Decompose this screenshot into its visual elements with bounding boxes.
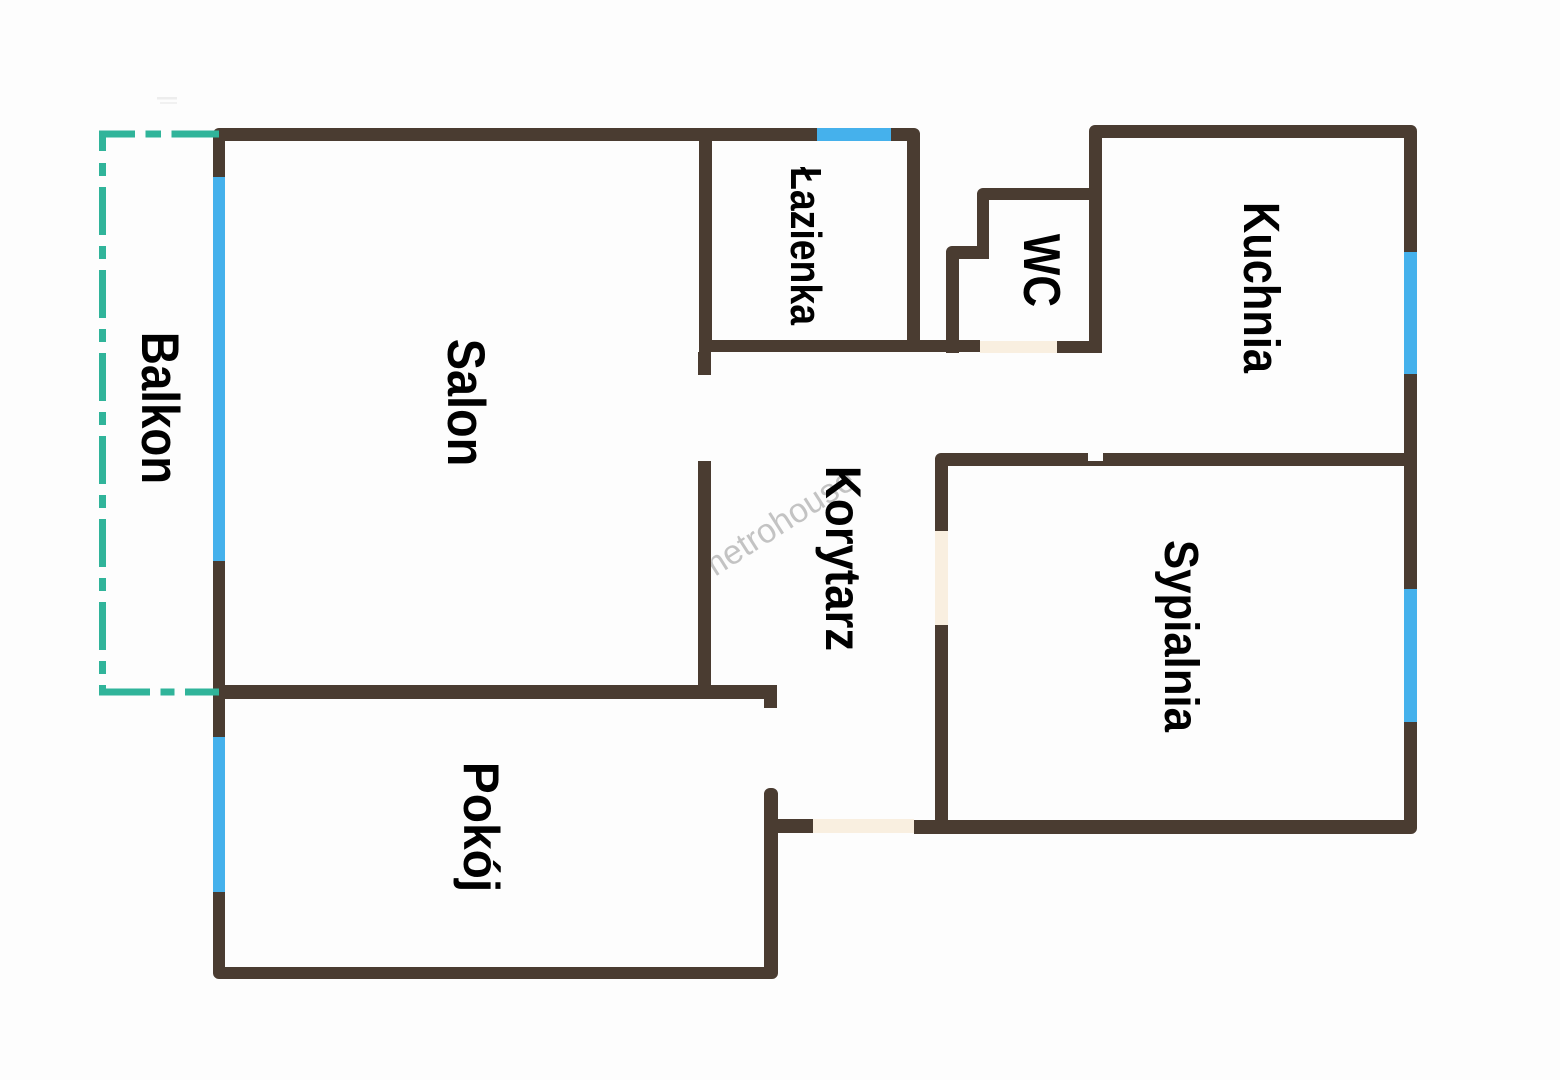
svg-text:Korytarz: Korytarz	[815, 466, 870, 651]
svg-text:WC: WC	[1012, 234, 1070, 307]
svg-text:Sypialnia: Sypialnia	[1155, 540, 1209, 732]
svg-text:Pokój: Pokój	[453, 762, 508, 892]
svg-text:Kuchnia: Kuchnia	[1232, 202, 1289, 374]
svg-text:Łazienka: Łazienka	[781, 167, 831, 325]
svg-text:Salon: Salon	[436, 339, 495, 467]
svg-text:Balkon: Balkon	[130, 332, 189, 484]
